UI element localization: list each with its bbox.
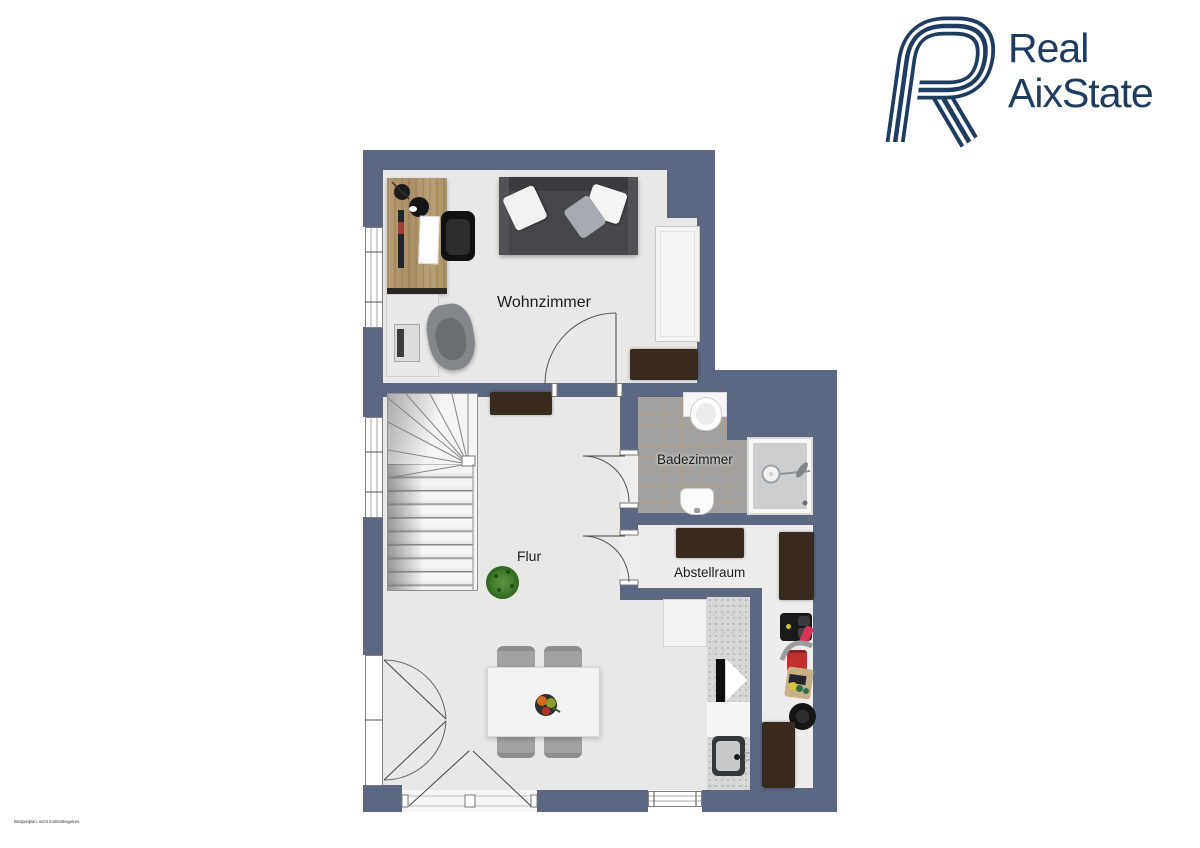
abstell-door-threshold xyxy=(620,535,638,580)
staircase-winder-shade xyxy=(388,394,472,464)
bottle-green-1 xyxy=(796,685,803,692)
sofa-armrest-left xyxy=(499,177,509,255)
room-label-flur: Flur xyxy=(517,548,541,564)
window-flur-icon xyxy=(365,418,383,518)
wall-between-doors xyxy=(620,508,638,530)
brand-name-line2: AixState xyxy=(1008,71,1153,116)
vacuum-button xyxy=(786,624,791,629)
dining-chair-bottom-left xyxy=(497,735,535,758)
window-wohnzimmer-icon xyxy=(365,228,383,328)
wall-bath-topright xyxy=(727,392,837,440)
storage-cabinet-bottom xyxy=(762,722,795,788)
wall-kitchen-corridor xyxy=(750,600,762,790)
sofa-backrest xyxy=(499,177,638,191)
storage-shelf-right xyxy=(779,532,814,600)
wall-bottom-1 xyxy=(537,790,648,812)
terrace-door-threshold xyxy=(402,790,537,812)
wall-bath-left-upper xyxy=(620,392,638,450)
dining-chair-top-left xyxy=(497,646,535,669)
wall-wing-bottom xyxy=(750,788,837,812)
dining-chair-bottom-right xyxy=(544,735,582,758)
bath-sink-tap xyxy=(694,508,700,513)
desk-lamp xyxy=(394,184,410,200)
wardrobe-door-line xyxy=(660,231,695,337)
vacuum-attachment-1 xyxy=(798,616,810,626)
stove xyxy=(716,659,725,702)
disclaimer-text: Beispielplan, nicht maßstabsgetreu xyxy=(14,820,79,824)
room-label-wohnzimmer: Wohnzimmer xyxy=(497,294,591,312)
wall-bottom-2 xyxy=(702,790,750,812)
tv-screen xyxy=(397,329,404,357)
wall-wing-top xyxy=(715,370,837,392)
wall-right-outer xyxy=(813,440,837,812)
brand-name-line1: Real xyxy=(1008,26,1153,71)
bad-door-threshold xyxy=(620,455,638,503)
dining-chair-top-right xyxy=(544,646,582,669)
office-chair-seat xyxy=(446,219,470,255)
floorplan-page: Wohnzimmer Badezimmer Flur Abstellraum R… xyxy=(0,0,1200,848)
wall-left-1 xyxy=(363,150,383,227)
wall-notch-wohnzimmer xyxy=(667,170,697,218)
brand-name: Real AixState xyxy=(1008,26,1153,116)
kitchen-sink-basin xyxy=(716,741,740,771)
sideboard-wohnzimmer xyxy=(630,349,698,380)
desk-monitor-accent xyxy=(398,222,404,234)
desk-mouse xyxy=(409,206,417,212)
window-bottom-icon xyxy=(649,791,702,807)
room-label-badezimmer: Badezimmer xyxy=(657,452,733,467)
brand-logo-mark-icon xyxy=(878,8,1006,148)
wall-left-2 xyxy=(363,327,383,417)
sideboard-flur xyxy=(490,392,552,415)
wall-corner-bottom-left xyxy=(363,785,402,812)
plant xyxy=(486,566,519,599)
desk-monitor xyxy=(398,210,404,268)
desk-paper xyxy=(418,216,440,265)
wall-top xyxy=(363,150,715,170)
staircase-lower-flight xyxy=(388,464,472,590)
room-label-abstellraum: Abstellraum xyxy=(674,565,745,580)
kitchen-cabinet-white xyxy=(663,599,707,647)
shower-tray xyxy=(753,443,807,509)
storage-shelf-top xyxy=(676,528,744,558)
wall-left-3 xyxy=(363,517,383,655)
bottle-green-2 xyxy=(803,688,809,694)
logo-r-stem-bowl xyxy=(895,26,989,142)
dining-table xyxy=(487,667,600,737)
toilet-bowl xyxy=(696,403,716,425)
wall-divider-opening xyxy=(553,383,621,397)
kitchen-counter-white-section xyxy=(707,702,750,737)
sofa-armrest-right xyxy=(628,177,638,255)
